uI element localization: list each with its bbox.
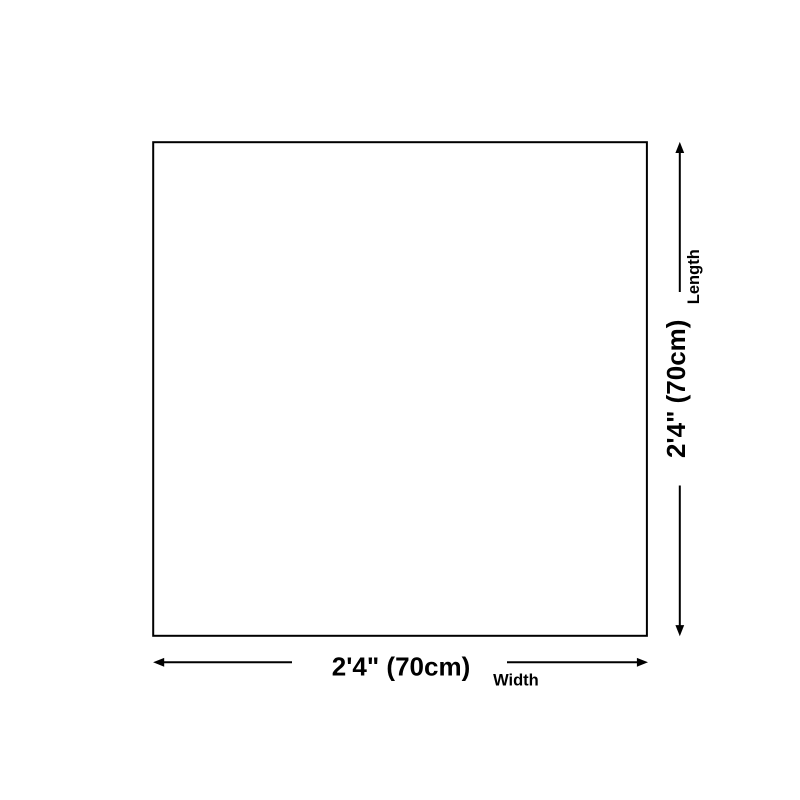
- svg-text:Length: Length: [685, 249, 703, 304]
- svg-text:Width: Width: [493, 672, 539, 690]
- svg-text:2'4" (70cm): 2'4" (70cm): [661, 320, 691, 458]
- svg-text:2'4" (70cm): 2'4" (70cm): [332, 651, 470, 681]
